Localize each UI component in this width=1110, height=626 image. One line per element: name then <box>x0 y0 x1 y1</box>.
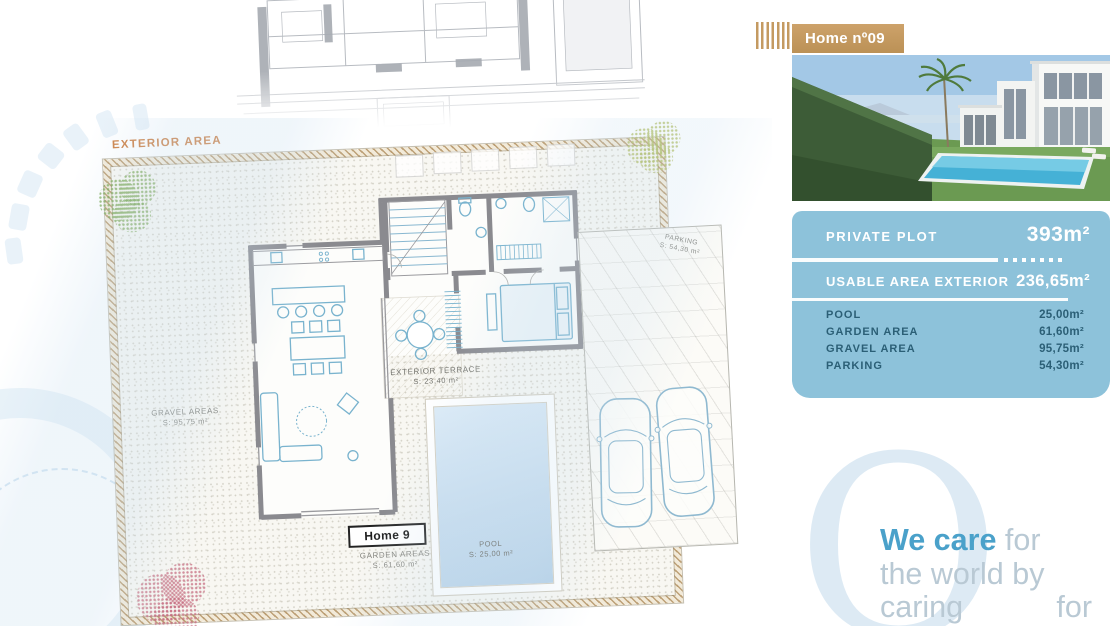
brochure-page: Q EXTERIOR AREA <box>0 0 1110 626</box>
brand-tagline: We care for the world by caringfor our w… <box>880 524 1092 626</box>
arc-segment <box>8 203 30 232</box>
divider-solid <box>792 258 998 262</box>
villa-photo <box>792 55 1110 201</box>
tagline-line1: We care for <box>880 524 1092 558</box>
list-item: GARDEN AREA 61,60m² <box>826 323 1084 340</box>
list-item: PARKING 54,30m² <box>826 358 1084 375</box>
pool-water: POOL S: 25,00 m² <box>433 402 554 588</box>
arc-segment <box>62 122 91 152</box>
plot-structure <box>433 151 462 174</box>
list-item: GRAVEL AREA 95,75m² <box>826 340 1084 357</box>
arc-segment <box>132 103 150 131</box>
area-summary-card: PRIVATE PLOT 393m² USABLE AREA EXTERIOR … <box>792 211 1110 398</box>
divider-thin <box>792 298 1068 301</box>
arc-segment <box>95 109 120 139</box>
pool-label: POOL S: 25,00 m² <box>447 537 534 560</box>
tagline-line3: caringfor <box>880 591 1092 625</box>
arc-segment <box>36 141 66 170</box>
list-item: POOL 25,00m² <box>826 306 1084 323</box>
plot-structure <box>547 144 576 167</box>
usable-area-label: USABLE AREA EXTERIOR <box>826 274 1009 289</box>
divider-dotted <box>1004 258 1066 262</box>
arc-segment <box>4 237 23 265</box>
arc-segment <box>16 169 44 199</box>
stripes-icon <box>756 22 790 49</box>
tagline-line2: the world by <box>880 558 1092 592</box>
parking-area: PARKING S: 54,30 m² <box>578 224 739 551</box>
usable-area-value: 236,65m² <box>1016 272 1090 291</box>
plot-structure <box>471 149 500 172</box>
plot-structure <box>395 155 424 178</box>
private-plot-value: 393m² <box>1027 223 1090 247</box>
home-number-box: Home 9 <box>348 523 427 548</box>
parked-cars <box>579 225 740 552</box>
usable-area-row: USABLE AREA EXTERIOR 236,65m² <box>826 272 1090 291</box>
home-title: Home nº09 <box>792 24 904 53</box>
plot-structure <box>509 146 538 169</box>
exterior-area-heading: EXTERIOR AREA <box>112 135 222 152</box>
area-breakdown-list: POOL 25,00m² GARDEN AREA 61,60m² GRAVEL … <box>826 306 1084 375</box>
private-plot-row: PRIVATE PLOT 393m² <box>826 223 1090 247</box>
private-plot-label: PRIVATE PLOT <box>826 229 938 244</box>
fade-overlay <box>226 0 650 142</box>
